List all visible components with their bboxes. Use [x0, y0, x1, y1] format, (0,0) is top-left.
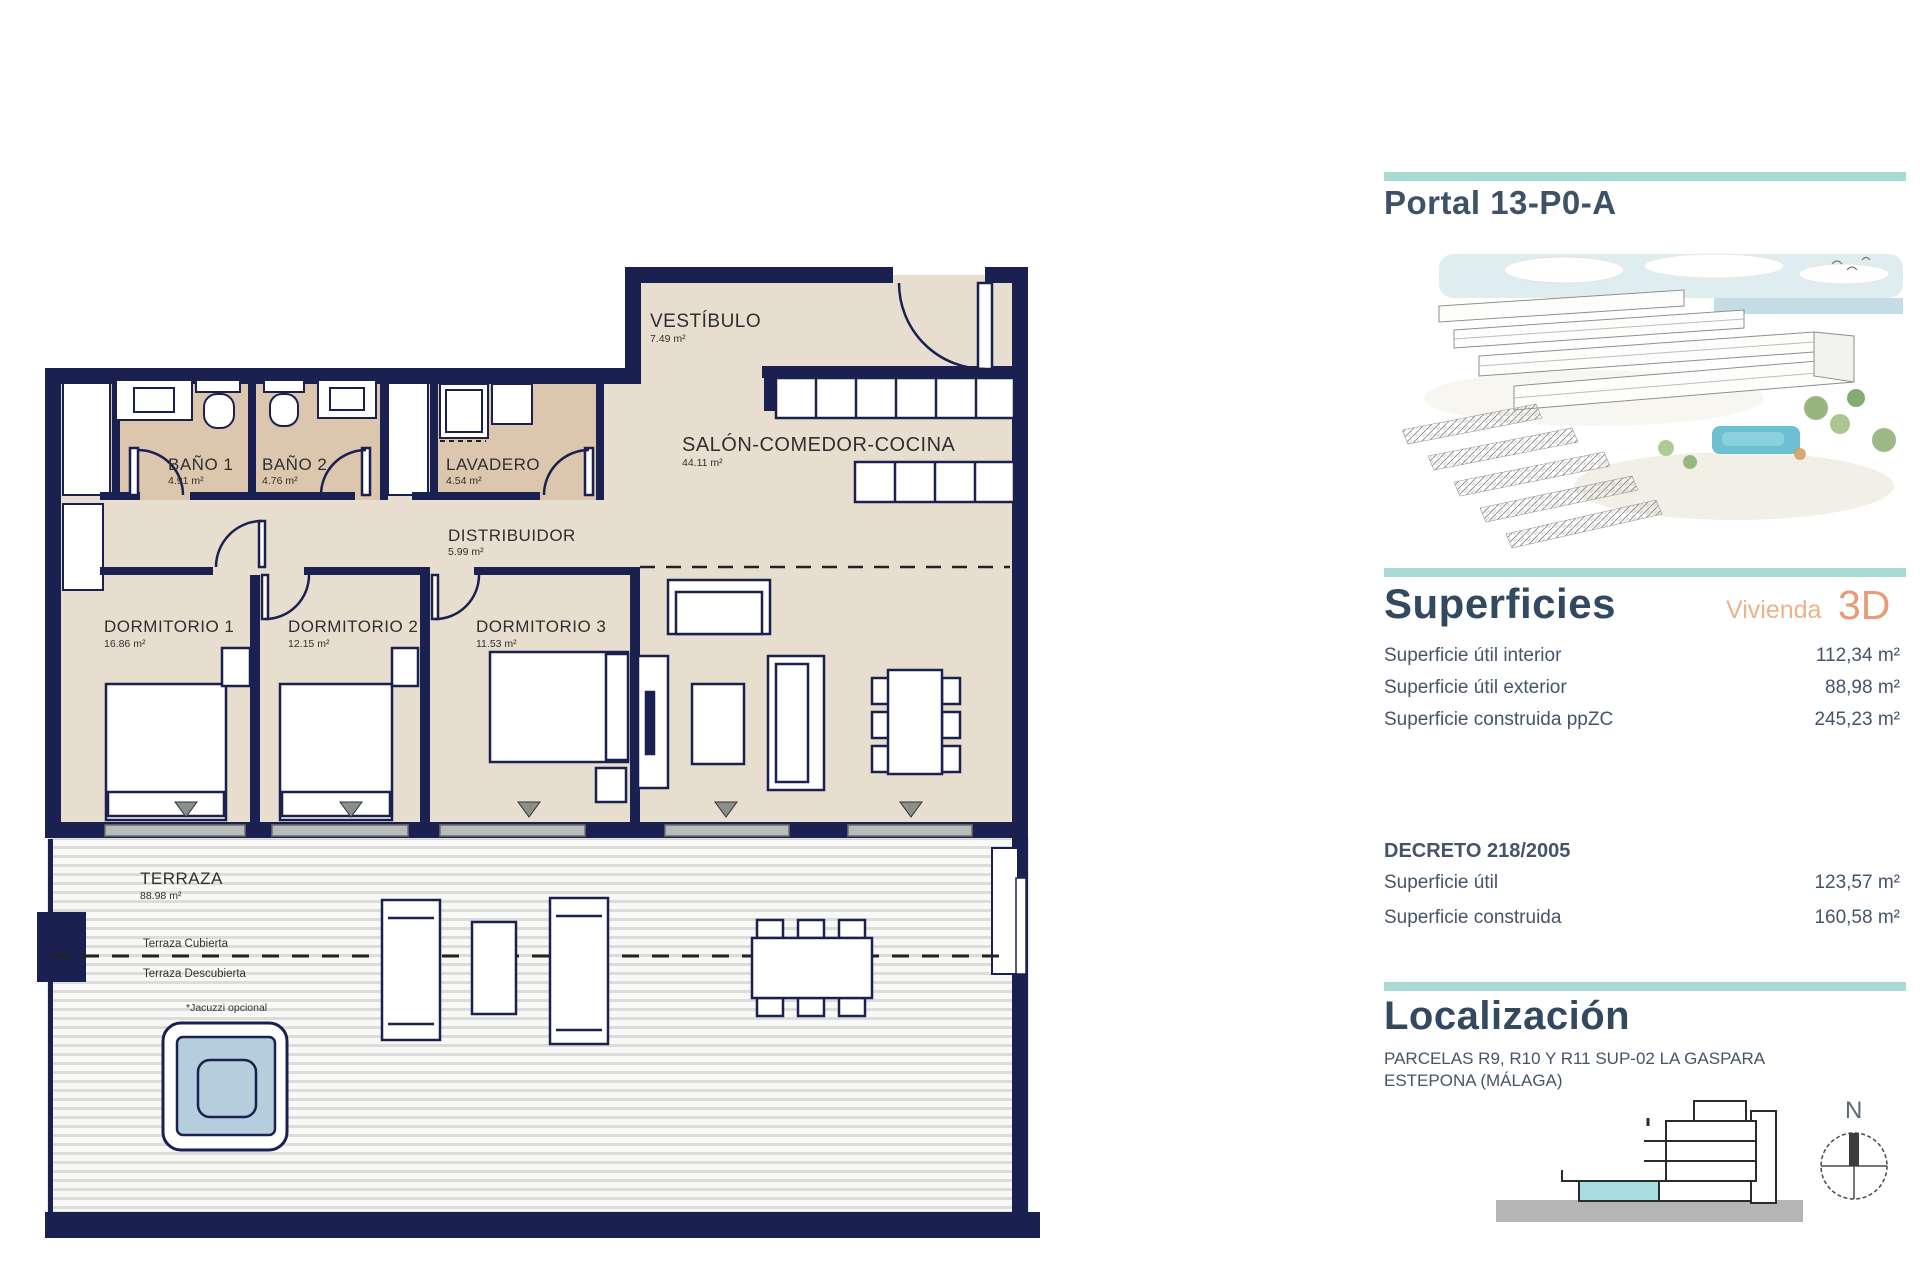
- room-area-lavadero: 4.54 m²: [446, 475, 482, 487]
- building-section: [1496, 1101, 1803, 1222]
- room-label-lavadero: LAVADERO: [446, 455, 540, 474]
- room-label-terraza: TERRAZA: [140, 869, 223, 888]
- development-illustration: [1384, 248, 1906, 556]
- room-area-salon: 44.11 m²: [682, 457, 723, 469]
- superficie-row: Superficie útil exterior 88,98 m²: [1384, 677, 1900, 703]
- room-area-bano2: 4.76 m²: [262, 475, 298, 487]
- decreto-row: Superficie útil 123,57 m²: [1384, 872, 1900, 898]
- decreto-row: Superficie construida 160,58 m²: [1384, 907, 1900, 933]
- room-area-dormitorio1: 16.86 m²: [104, 638, 146, 650]
- room-area-distribuidor: 5.99 m²: [448, 546, 484, 558]
- room-label-distribuidor: DISTRIBUIDOR: [448, 526, 576, 545]
- compass: N: [1821, 1097, 1887, 1199]
- teal-divider-localizacion: [1384, 982, 1906, 991]
- decreto-label: Superficie útil: [1384, 872, 1498, 894]
- compass-north-label: N: [1845, 1097, 1862, 1124]
- room-label-dormitorio3: DORMITORIO 3: [476, 617, 606, 636]
- superficie-label: Superficie construida ppZC: [1384, 709, 1613, 731]
- vivienda-label: Vivienda: [1726, 596, 1821, 625]
- superficie-row: Superficie útil interior 112,34 m²: [1384, 645, 1900, 671]
- north-needle: [1849, 1133, 1859, 1166]
- superficie-value: 245,23 m²: [1814, 709, 1900, 731]
- info-panel: Portal 13-P0-A: [1376, 0, 1914, 1280]
- location-figure: N: [1376, 1088, 1914, 1248]
- room-label-vestibulo: VESTÍBULO: [650, 311, 761, 332]
- highlighted-unit: [1579, 1181, 1659, 1201]
- room-label-dormitorio2: DORMITORIO 2: [288, 617, 418, 636]
- superficie-label: Superficie útil interior: [1384, 645, 1561, 667]
- label-terraza-cubierta: Terraza Cubierta: [143, 938, 229, 950]
- label-jacuzzi: *Jacuzzi opcional: [186, 1002, 267, 1014]
- room-area-vestibulo: 7.49 m²: [650, 333, 686, 345]
- room-area-dormitorio3: 11.53 m²: [476, 638, 517, 650]
- superficies-heading: Superficies: [1384, 580, 1616, 628]
- label-terraza-descubierta: Terraza Descubierta: [143, 968, 247, 980]
- floor-plan: VESTÍBULO 7.49 m² SALÓN-COMEDOR-COCINA 4…: [0, 0, 1080, 1280]
- address-line-1: PARCELAS R9, R10 Y R11 SUP-02 LA GASPARA: [1384, 1048, 1765, 1070]
- teal-divider-superficies: [1384, 568, 1906, 577]
- decreto-value: 123,57 m²: [1814, 872, 1900, 894]
- localizacion-heading: Localización: [1384, 994, 1630, 1039]
- room-area-dormitorio2: 12.15 m²: [288, 638, 330, 650]
- superficie-row: Superficie construida ppZC 245,23 m²: [1384, 709, 1900, 735]
- room-area-terraza: 88.98 m²: [140, 890, 182, 902]
- room-label-bano1: BAÑO 1: [168, 455, 233, 474]
- page-title: Portal 13-P0-A: [1384, 184, 1617, 222]
- jacuzzi: [163, 1023, 287, 1150]
- superficie-value: 88,98 m²: [1825, 677, 1900, 699]
- decreto-heading: DECRETO 218/2005: [1384, 840, 1570, 863]
- decreto-value: 160,58 m²: [1814, 907, 1900, 929]
- teal-divider-top: [1384, 172, 1906, 181]
- room-area-bano1: 4.91 m²: [168, 475, 204, 487]
- page: VESTÍBULO 7.49 m² SALÓN-COMEDOR-COCINA 4…: [0, 0, 1920, 1280]
- localizacion-address: PARCELAS R9, R10 Y R11 SUP-02 LA GASPARA…: [1384, 1048, 1765, 1092]
- decreto-label: Superficie construida: [1384, 907, 1561, 929]
- vivienda-type: 3D: [1838, 582, 1890, 629]
- room-label-bano2: BAÑO 2: [262, 455, 327, 474]
- room-label-salon: SALÓN-COMEDOR-COCINA: [682, 433, 956, 456]
- superficie-label: Superficie útil exterior: [1384, 677, 1567, 699]
- room-label-dormitorio1: DORMITORIO 1: [104, 617, 234, 636]
- superficie-value: 112,34 m²: [1816, 645, 1900, 667]
